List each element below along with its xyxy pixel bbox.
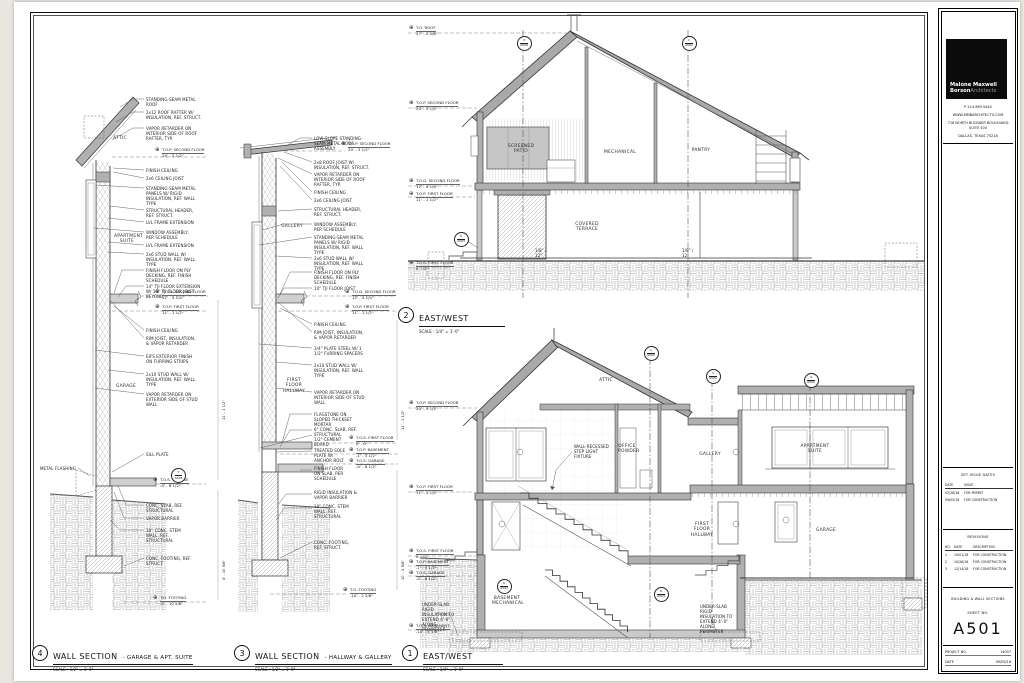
annotation: FINISH CEILING [146,328,202,333]
divider [943,467,1013,468]
level-label: ⊕T.O.D. SECOND FLOOR12' - 4 1/4" [352,290,396,301]
level-marker-icon: ⊕ [409,484,414,491]
annotation: LVL FRAME EXTENSION [146,243,202,248]
architect-phone: P 214.969.5440 [939,105,1017,110]
room-label-hallway-d3: FIRST FLOOR HALLWAY [280,378,308,394]
divider [943,645,1013,646]
drawing-scale: SCALE : 1/4" = 1'-0" [419,329,505,334]
annotation: CONC. FOOTING, REF. STRUCT. [146,556,194,566]
annotation: FINISH FLOOR ON PLY DECKING, REF. FINISH… [314,270,366,285]
drawing-title-text: WALL SECTION [255,652,319,661]
drawing-number-badge: 4 [32,645,48,661]
detail-callout-marker: 8A503 [654,587,669,602]
drawing-number-badge: 3 [234,645,250,661]
room-label-apartment-suite-d4: APARTMENT SUITE [114,234,140,245]
revision-row: 312/14/18FOR CONSTRUCTION [945,567,1013,571]
drawing-number-badge: 1 [402,645,418,661]
annotation: 2x6 CEILING JOIST [146,176,202,181]
annotation: WINDOW ASSEMBLY, PER SCHEDULE [314,222,364,232]
annotation: FINISH FLOOR ON SLAB, PER SCHEDULE [314,466,350,481]
divider [943,529,1013,530]
set-issue-row: 09/05/18FOR CONSTRUCTION [945,498,1013,502]
level-marker-icon: ⊕ [349,458,354,465]
level-label: ⊕T.O.P. SECOND FLOOR20' - 3 1/2" [348,142,390,153]
drawing-title-3: 3 WALL SECTION - HALLWAY & GALLERYSCALE … [234,644,392,672]
level-marker-icon: ⊕ [343,587,348,594]
level-label: ⊕T.O.P. FIRST FLOOR11' - 1 1/2" [352,305,389,316]
detail-callout-marker: 7A503 [171,468,186,483]
level-marker-icon: ⊕ [409,570,414,577]
annotation: FINISH FLOOR ON PLY DECKING, REF. FINISH… [146,268,198,283]
annotation: WALL-RECESSED STEP LIGHT FIXTURE [574,444,610,459]
drawing-scale: SCALE : 1/2" = 1'-0" [255,667,392,672]
dimension-text: 10' - 2 5/8" [401,560,405,580]
project-number-row: PROJECT NO.14007 [945,650,1011,656]
level-marker-icon: ⊕ [155,147,160,154]
level-marker-icon: ⊕ [409,191,414,198]
annotation: 2x6 CEILING JOIST [314,198,370,203]
drawing-title-subtext: - HALLWAY & GALLERY [325,655,392,661]
level-marker-icon: ⊕ [341,141,346,148]
dimension-text: 11' - 1 1/2" [222,400,226,420]
drawing-title-text: WALL SECTION [53,652,117,661]
drawing-title-subtext: - GARAGE & APT. SUITE [123,655,193,661]
level-marker-icon: ⊕ [409,559,414,566]
architect-website: WWW.MMBARCHITECTS.COM [939,113,1017,118]
annotation: STANDING-SEAM METAL PANELS W/ RIGID INSU… [314,235,374,255]
dimension-text: 11' - 1 1/2" [401,410,405,430]
level-marker-icon: ⊕ [155,289,160,296]
annotation: STANDING-SEAM METAL ROOF [146,97,196,107]
level-marker-icon: ⊕ [409,400,414,407]
level-label: ⊕T.O. FOOTING-10' - 2 5/8" [350,588,376,599]
level-label: ⊕T.O. ROOF27' - 2 5/8" [416,26,438,37]
level-marker-icon: ⊕ [153,477,158,484]
drawing-sheet: ATTIC APARTMENT SUITE GARAGE STANDING-SE… [0,0,1024,683]
level-label: ⊕T.O.P. SECOND FLOOR20' - 3 1/2" [162,148,204,159]
annotation: STRUCTURAL HEADER, REF. STRUCT. [146,208,196,218]
level-marker-icon: ⊕ [409,548,414,555]
detail-callout-marker: 5A503 [454,232,469,247]
level-label: ⊕T.O.S. FIRST FLOOR0' - 0" [356,436,394,447]
room-label-gallery-d3: GALLERY [280,224,304,229]
section-cut-marker: 4A501 [804,373,819,388]
room-label-attic-d1: ATTIC [594,378,618,383]
section-cut-marker: 3A509 [517,36,532,51]
revisions-heading: REVISIONS [939,535,1017,539]
set-issue-header-row: DATEISSUE [945,483,1013,489]
level-label: ⊕T.O.S. GARAGE-0' - 6 1/2" [356,459,385,470]
section-cut-marker: 3A501 [706,369,721,384]
sheet-title: BUILDING & WALL SECTIONS [939,597,1017,601]
level-label: ⊕T.O. FOOTING-4' - 10 5/8" [160,596,186,607]
divider [943,587,1013,588]
annotation: 2x6 STUD WALL W/ INSULATION, REF. WALL T… [314,256,366,271]
set-issue-heading: SET ISSUE DATES [939,473,1017,477]
annotation: VAPOR RETARDER ON EXTERIOR SIDE OF STUD … [146,392,198,407]
architect-address-2: SUITE 400 [939,126,1017,131]
annotation: 2x6 STUD WALL W/ INSULATION, REF. WALL T… [146,252,198,267]
room-label-covered-terrace: COVERED TERRACE [572,222,602,233]
annotation: VAPOR RETARDER ON INTERIOR SIDE OF STUD … [314,390,366,405]
annotation: FLAGSTONE ON SLOPED THICKSET MORTAR [314,412,364,427]
logo-line2: BorsonArchitects [950,89,1003,95]
revision-row: 210/26/18FOR CONSTRUCTION [945,560,1013,564]
annotation: FINISH CEILING [146,168,202,173]
annotation: UNDER-SLAB RIGID INSULATION TO EXTEND 4'… [700,604,738,634]
room-label-mechanical: MECHANICAL [600,150,640,155]
room-label-office-powder: OFFICE POWDER [618,444,636,455]
annotation: VAPOR RETARDER ON INTERIOR SIDE OF ROOF … [146,126,202,141]
annotation: 2x12 ROOF RAFTER W/ INSULATION, REF. STR… [146,110,202,120]
set-issue-row: 02/26/18FOR PERMIT [945,491,1013,495]
level-label: ⊕T.O.P. FIRST FLOOR11' - 1 1/2" [162,305,199,316]
sheet-no-label: SHEET NO. [939,611,1017,615]
level-marker-icon: ⊕ [153,595,158,602]
date-row: DATE09/05/18 [945,660,1011,666]
level-label: ⊕T.O.D. SECOND FLOOR12' - 4 1/4" [162,290,206,301]
level-label: ⊕T.O.P. SECOND FLOOR20' - 3 1/2" [416,101,458,112]
slope-tag: 1/8" / 12" [682,248,702,258]
level-marker-icon: ⊕ [409,178,414,185]
level-label: ⊕T.O.S. FIRST FLOOR0' - 0" [416,261,454,272]
annotation: RIGID INSULATION & VAPOR BARRIER [314,490,358,500]
annotation: SILL PLATE [146,452,196,457]
room-label-apartment-suite-d1: APARTMENT SUITE [798,444,832,455]
level-label: ⊕T.O.P. FIRST FLOOR11' - 1 1/2" [416,485,453,496]
level-marker-icon: ⊕ [155,304,160,311]
level-marker-icon: ⊕ [349,435,354,442]
annotation: LVL FRAME EXTENSION [146,220,202,225]
level-label: ⊕T.O.D. SECOND FLOOR12' - 4 1/4" [416,179,460,190]
annotation: FINISH CEILING [314,190,370,195]
level-marker-icon: ⊕ [345,304,350,311]
annotation: CONC. FOOTING, REF. STRUCT. [314,540,358,550]
annotation: RIM JOIST, INSULATION, & VAPOR RETARDER [146,336,198,346]
annotation: FINISH CEILING [314,322,366,327]
level-label: ⊕T.O.S. BASEMENT-10' - 4 5/8" [416,624,450,635]
divider [943,143,1013,144]
room-label-gallery-d1: GALLERY [698,452,722,457]
annotation: 3/4" PLATE STEEL W/ 1 1/2" FURRING SPACE… [314,346,364,356]
drawing-scale: SCALE : 1/4" = 1'-0" [423,667,503,672]
level-marker-icon: ⊕ [349,447,354,454]
revisions-header-row: NO.DATEDESCRIPTION [945,545,1013,551]
annotation: VAPOR RETARDER ON INTERIOR SIDE OF ROOF … [314,172,370,187]
annotation: TREATED SOLE PLATE W/ ANCHOR BOLT [314,448,350,463]
annotation: STRUCTURAL HEADER, REF. STRUCT. [314,207,364,217]
room-label-garage-d1: GARAGE [812,528,840,533]
drawing-title-1: 1 EAST/WESTSCALE : 1/4" = 1'-0" [402,644,503,672]
level-label: ⊕T.O.S. GARAGE-0' - 6 1/2" [416,571,445,582]
drawing-title-4: 4 WALL SECTION - GARAGE & APT. SUITESCAL… [32,644,193,672]
revision-row: 110/01/18FOR CONSTRUCTION [945,553,1013,557]
annotation: CONC. SLAB, REF. STRUCTURAL [146,503,194,513]
annotation: RIM JOIST, INSULATION, & VAPOR RETARDER [314,330,366,340]
title-block-inner-border [941,11,1016,672]
drawing-scale: SCALE : 1/2" = 1'-0" [53,667,193,672]
section-cut-marker: 1A502 [644,346,659,361]
annotation: 10" CONC. STEM WALL, REF. STRUCTURAL [314,504,358,519]
drawing-title-2: 2 EAST/WESTSCALE : 1/4" = 1'-0" [398,306,505,334]
annotation: 10" CONC. STEM WALL, REF. STRUCTURAL [146,528,194,543]
annotation: 2x10 STUD WALL W/ INSULATION, REF. WALL … [146,372,198,387]
annotation: WINDOW ASSEMBLY, PER SCHEDULE [146,230,196,240]
level-marker-icon: ⊕ [409,25,414,32]
drawing-title-text: EAST/WEST [423,652,473,661]
architect-address-3: DALLAS, TEXAS 75218 [939,134,1017,139]
annotation: 1/2" CEMENT BOARD [314,437,350,447]
annotation: 2x8 ROOF JOIST W/ INSULATION, REF. STRUC… [314,160,370,170]
slope-tag: 1/8" / 12" [535,248,555,258]
section-cut-marker: 1A502 [682,36,697,51]
annotation: EIFS EXTERIOR FINISH ON FURRING STRIPS [146,354,198,364]
sheet-number: A501 [939,619,1017,638]
architect-address-1: 718 NORTH BUCKNER BOULEVARD [939,121,1017,126]
annotation: VAPOR BARRIER [146,516,194,521]
detail-callout-marker: 6A503 [497,579,512,594]
annotation: 2x10 STUD WALL W/ INSULATION, REF. WALL … [314,363,366,378]
room-label-garage-d4: GARAGE [114,384,138,389]
annotation: METAL FLASHING [40,466,78,471]
drawing-title-text: EAST/WEST [419,314,469,323]
drawing-number-badge: 2 [398,307,414,323]
room-label-hallway-d1: FIRST FLOOR HALLWAY [688,522,716,538]
room-label-pantry: PANTRY [686,148,716,153]
room-label-basement-mechanical: BASEMENT MECHANICAL [492,596,522,607]
level-label: ⊕T.O.P. FIRST FLOOR11' - 1 1/2" [416,192,453,203]
room-label-attic-d4: ATTIC [110,136,130,141]
level-label: ⊕T.O.P. SECOND FLOOR20' - 3 1/2" [416,401,458,412]
level-marker-icon: ⊕ [345,289,350,296]
title-block: Malone Maxwell BorsonArchitects P 214.96… [938,8,1018,674]
room-label-screened-patio: SCREENED PATIO [506,144,536,155]
level-marker-icon: ⊕ [409,100,414,107]
level-marker-icon: ⊕ [409,260,414,267]
annotation: STANDING-SEAM METAL PANELS W/ RIGID INSU… [146,186,204,206]
dimension-text: 4' - 10 5/8" [222,560,226,580]
architect-logo: Malone Maxwell BorsonArchitects [946,39,1007,99]
level-marker-icon: ⊕ [409,623,414,630]
